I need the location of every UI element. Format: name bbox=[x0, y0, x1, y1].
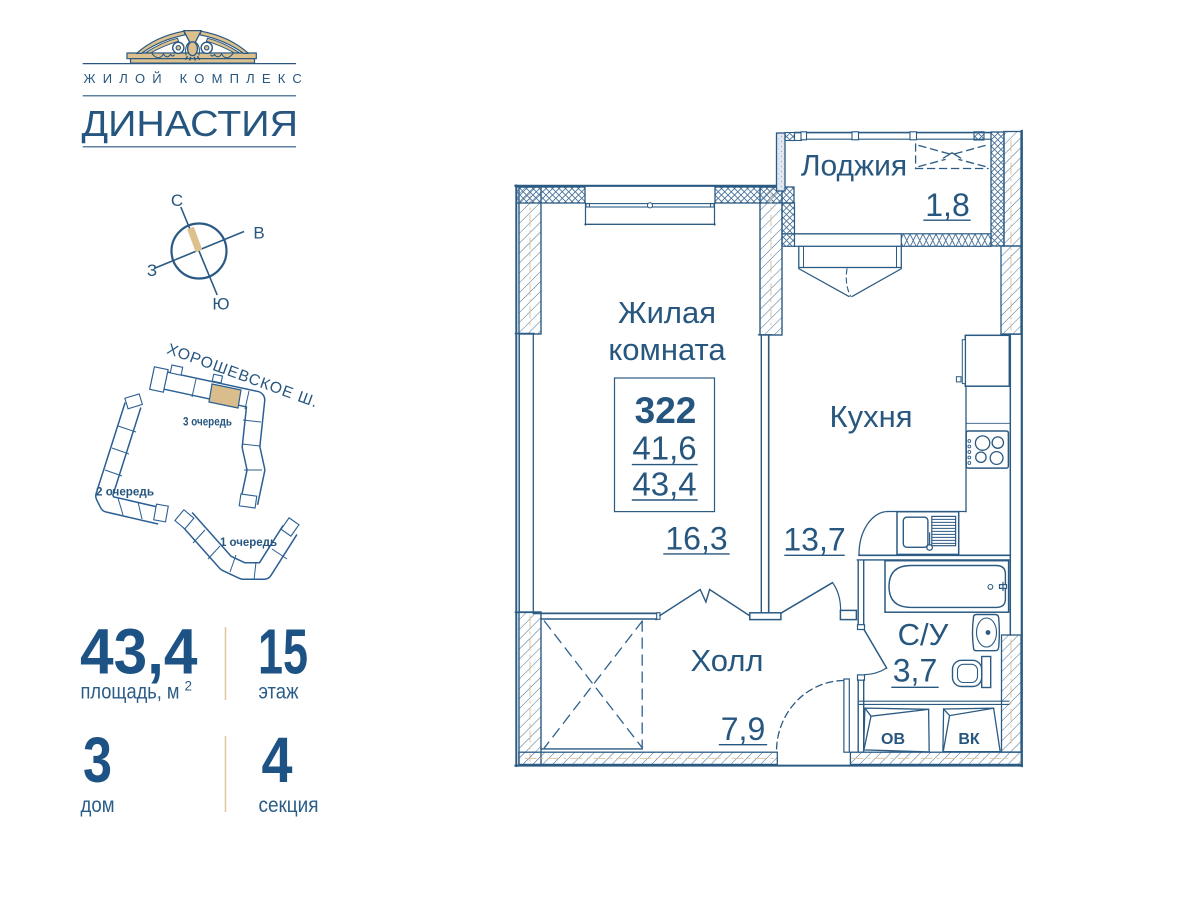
svg-text:322: 322 bbox=[635, 390, 697, 431]
svg-text:секция: секция bbox=[259, 794, 319, 817]
svg-text:Кухня: Кухня bbox=[830, 399, 913, 434]
svg-text:43,4: 43,4 bbox=[80, 616, 198, 688]
svg-text:3 очередь: 3 очередь bbox=[183, 417, 232, 429]
svg-text:3,7: 3,7 bbox=[893, 653, 937, 689]
svg-text:дом: дом bbox=[81, 794, 115, 817]
svg-text:2: 2 bbox=[185, 679, 193, 694]
svg-text:1 очередь: 1 очередь bbox=[220, 537, 277, 549]
svg-text:43,4: 43,4 bbox=[632, 466, 696, 503]
svg-text:ДИНАСТИЯ: ДИНАСТИЯ bbox=[82, 103, 299, 144]
svg-text:ОВ: ОВ bbox=[881, 731, 905, 748]
svg-text:Ю: Ю bbox=[212, 295, 229, 314]
svg-text:7,9: 7,9 bbox=[721, 711, 765, 747]
svg-text:16,3: 16,3 bbox=[665, 521, 727, 557]
svg-text:комната: комната bbox=[608, 332, 726, 367]
svg-text:С: С bbox=[171, 191, 183, 210]
svg-text:Холл: Холл bbox=[690, 643, 763, 678]
svg-text:13,7: 13,7 bbox=[783, 522, 845, 558]
svg-text:В: В bbox=[253, 224, 264, 243]
svg-text:4: 4 bbox=[262, 724, 293, 796]
svg-text:Жилая: Жилая bbox=[618, 295, 716, 330]
svg-text:3: 3 bbox=[83, 724, 112, 796]
svg-text:ЖИЛОЙ КОМПЛЕКС: ЖИЛОЙ КОМПЛЕКС bbox=[84, 71, 309, 86]
svg-text:2 очередь: 2 очередь bbox=[96, 487, 154, 499]
svg-text:площадь, м: площадь, м bbox=[81, 681, 180, 704]
svg-text:1,8: 1,8 bbox=[925, 187, 969, 223]
svg-text:С/У: С/У bbox=[898, 617, 949, 652]
svg-text:З: З bbox=[147, 261, 157, 280]
svg-text:ВК: ВК bbox=[958, 731, 980, 748]
svg-text:Лоджия: Лоджия bbox=[801, 150, 907, 183]
svg-text:этаж: этаж bbox=[259, 681, 299, 704]
svg-text:41,6: 41,6 bbox=[632, 430, 696, 467]
svg-text:15: 15 bbox=[258, 616, 308, 688]
